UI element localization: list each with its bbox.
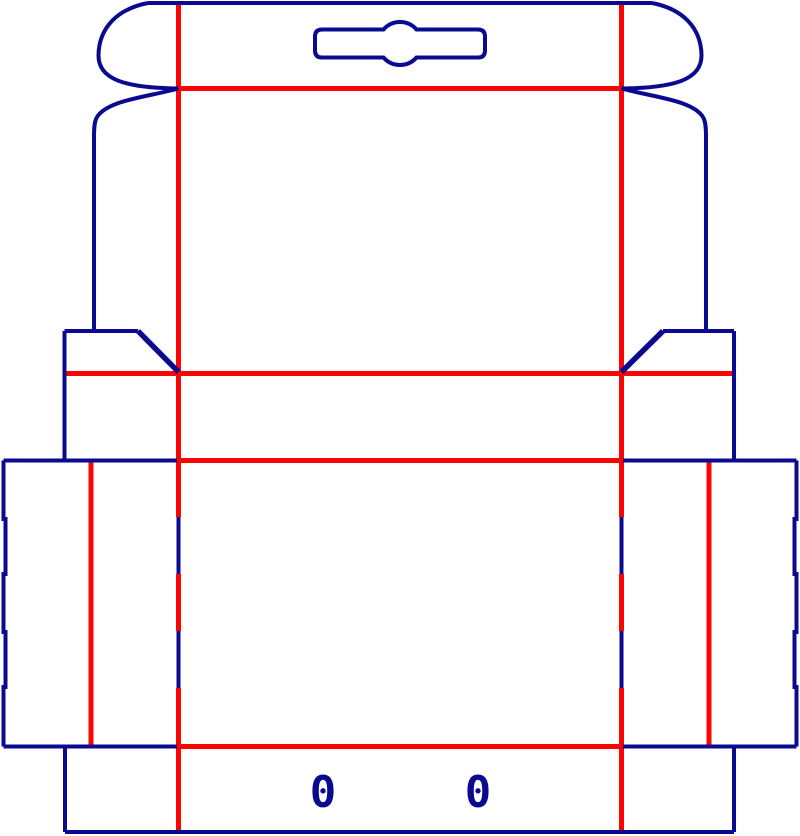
cut-path-0: [4, 461, 6, 747]
cut-path-5: [622, 89, 707, 332]
zero-label-left: 0: [309, 771, 337, 815]
cut-line-4: [622, 331, 664, 372]
cut-path-1: [795, 461, 797, 747]
cut-line-2: [138, 331, 179, 372]
dieline-drawing: [0, 0, 800, 836]
dieline-page: 0 0: [0, 0, 800, 836]
cut-path-2: [98, 3, 178, 89]
cut-path-6: [315, 22, 485, 65]
cut-path-3: [622, 3, 702, 89]
cut-path-4: [94, 89, 179, 332]
zero-label-right: 0: [464, 771, 492, 815]
